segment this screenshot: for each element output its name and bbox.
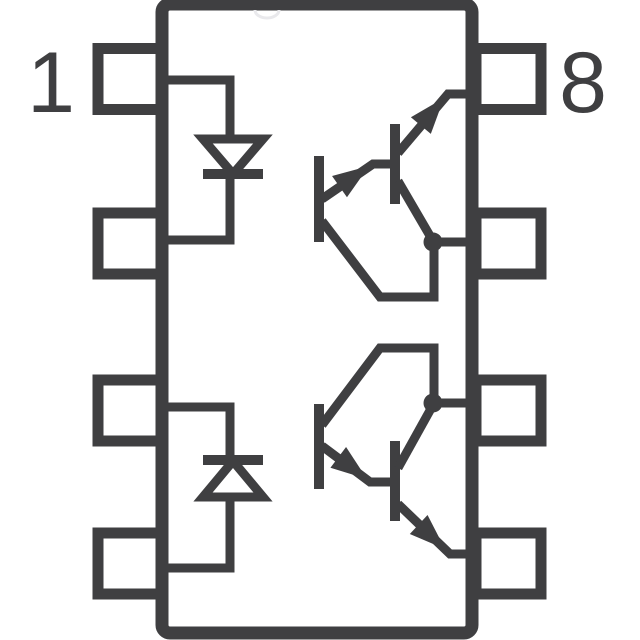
q2b-collector-wire [398,405,433,468]
pin3-pad [98,380,161,441]
darlington1-symbol [319,90,468,297]
q2a-collector-wire [322,348,434,425]
q1a-collector-wire [322,221,434,297]
pin8-pad [476,49,541,110]
pin7-pad [476,213,541,274]
optocoupler-schematic: 1 8 [0,0,640,640]
pin1-pad [98,49,161,110]
q2-junction-dot-icon [424,394,443,413]
darlington2-symbol [319,348,468,559]
led1-cathode-wire [160,174,230,240]
led2-anode-wire [160,497,230,568]
led1-triangle-icon [203,139,263,174]
pin2-pad [98,213,161,274]
q1-junction-dot-icon [424,233,443,252]
left-pin-pads [98,49,161,595]
q2a-emitter-wire [322,446,393,482]
led1-symbol [160,80,263,240]
pin1-label: 1 [27,35,75,131]
right-pin-pads [476,49,541,595]
led2-cathode-wire [160,407,230,460]
led1-anode-wire [160,80,230,139]
q1b-collector-wire [398,181,433,241]
led2-triangle-icon [203,461,263,497]
pin6-pad [476,380,541,441]
schematic-page: 1 8 [0,0,640,640]
pin4-pad [98,533,161,594]
led2-symbol [160,407,263,568]
pin8-label: 8 [559,35,607,131]
top-notch-icon [255,10,279,18]
pin5-pad [476,533,541,594]
